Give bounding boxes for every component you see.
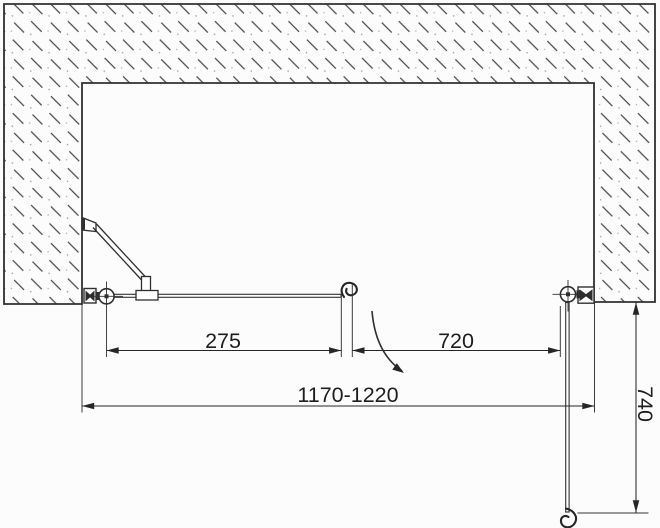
dimension-label-720: 720 [438, 329, 474, 353]
wall-section-hatched [4, 4, 655, 304]
door-handle-closed-position [342, 283, 357, 297]
left-wall-profile [84, 289, 101, 304]
dimension-740: 740 [633, 303, 657, 513]
support-bar [93, 224, 146, 281]
shower-niche-top-view-drawing: 275 720 1170-1220 740 [0, 0, 660, 528]
dimension-label-275: 275 [205, 329, 241, 353]
dimension-1170-1220: 1170-1220 [82, 383, 595, 407]
door-swing-arc [372, 311, 404, 373]
dimension-275: 275 [107, 329, 342, 353]
dimension-label-1170-1220: 1170-1220 [297, 383, 398, 407]
open-door-glass-panel [566, 303, 569, 513]
support-bar-glass-clamp [136, 291, 158, 301]
right-wall-profile [577, 287, 595, 303]
support-bar-end-stub [142, 277, 151, 292]
dimension-720: 720 [352, 329, 560, 353]
door-assembly-open [553, 280, 595, 527]
dimension-label-740: 740 [633, 386, 657, 422]
technical-drawing-canvas: 275 720 1170-1220 740 [0, 0, 660, 528]
fixed-panel-glass [96, 294, 341, 297]
